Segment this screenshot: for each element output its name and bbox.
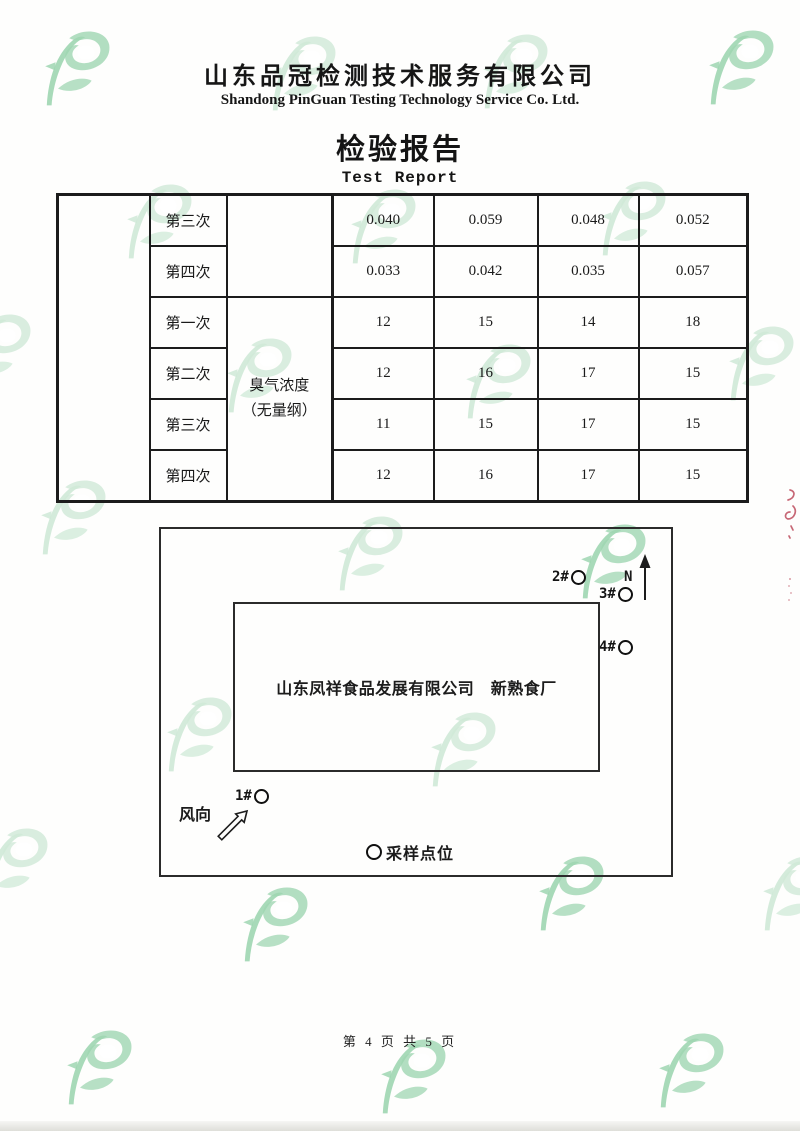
scan-bottom-edge	[0, 1121, 800, 1131]
legend: 采样点位	[366, 840, 454, 864]
parameter-line2: （无量纲）	[242, 403, 317, 419]
sampling-point-circle-icon	[254, 789, 269, 804]
site-map: 山东凤祥食品发展有限公司 新熟食厂 2# 3# 4# 1# N	[159, 527, 673, 877]
cell-value: 17	[538, 450, 639, 502]
sampling-point-circle-icon	[618, 640, 633, 655]
factory-building: 山东凤祥食品发展有限公司 新熟食厂	[233, 602, 600, 772]
cell-value: 0.048	[538, 195, 639, 247]
row-label: 第一次	[150, 297, 227, 348]
company-name: 山东品冠检测技术服务有限公司	[0, 56, 800, 91]
cell-value: 15	[639, 348, 748, 399]
table-row: 第一次 臭气浓度 （无量纲） 12 15 14 18	[58, 297, 748, 348]
cell-value: 0.059	[434, 195, 538, 247]
report-page: 山东品冠检测技术服务有限公司 Shandong PinGuan Testing …	[0, 0, 800, 1131]
row-label: 第三次	[150, 399, 227, 450]
cell-value: 16	[434, 348, 538, 399]
report-title: 检验报告	[0, 126, 800, 168]
cell-value: 12	[333, 450, 434, 502]
sampling-point-4: 4#	[599, 639, 633, 655]
parameter-line1: 臭气浓度	[249, 378, 309, 394]
red-edge-marks	[781, 486, 799, 548]
empty-parameter-cell	[227, 195, 333, 298]
empty-merged-cell	[58, 195, 150, 502]
cell-value: 12	[333, 348, 434, 399]
cell-value: 17	[538, 348, 639, 399]
wind-direction-label: 风向	[179, 801, 211, 825]
table-row: 第三次 11 15 17 15	[58, 399, 748, 450]
table-row: 第四次 12 16 17 15	[58, 450, 748, 502]
cell-value: 0.040	[333, 195, 434, 247]
cell-value: 16	[434, 450, 538, 502]
row-label: 第二次	[150, 348, 227, 399]
results-table: 第三次 0.040 0.059 0.048 0.052 第四次 0.033 0.…	[56, 193, 749, 503]
legend-label: 采样点位	[386, 840, 454, 864]
cell-value: 15	[639, 399, 748, 450]
table-row: 第二次 12 16 17 15	[58, 348, 748, 399]
sampling-point-2-label: 2#	[552, 569, 569, 585]
cell-value: 15	[434, 399, 538, 450]
legend-circle-icon	[366, 844, 382, 860]
cell-value: 0.033	[333, 246, 434, 297]
table-row: 第四次 0.033 0.042 0.035 0.057	[58, 246, 748, 297]
parameter-label: 臭气浓度 （无量纲）	[227, 297, 333, 502]
red-edge-dots	[784, 576, 796, 606]
cell-value: 0.035	[538, 246, 639, 297]
cell-value: 0.042	[434, 246, 538, 297]
sampling-point-1: 1#	[235, 788, 269, 804]
north-arrow-icon	[638, 554, 652, 602]
company-name-en: Shandong PinGuan Testing Technology Serv…	[0, 92, 800, 109]
cell-value: 18	[639, 297, 748, 348]
sampling-point-3-label: 3#	[599, 586, 616, 602]
cell-value: 14	[538, 297, 639, 348]
table-row: 第三次 0.040 0.059 0.048 0.052	[58, 195, 748, 247]
sampling-point-4-label: 4#	[599, 639, 616, 655]
cell-value: 15	[434, 297, 538, 348]
content-layer: 山东品冠检测技术服务有限公司 Shandong PinGuan Testing …	[0, 0, 800, 1131]
cell-value: 11	[333, 399, 434, 450]
cell-value: 12	[333, 297, 434, 348]
wind-arrow-icon	[213, 805, 251, 843]
row-label: 第三次	[150, 195, 227, 247]
cell-value: 15	[639, 450, 748, 502]
sampling-point-circle-icon	[571, 570, 586, 585]
sampling-point-2: 2#	[552, 569, 586, 585]
cell-value: 17	[538, 399, 639, 450]
sampling-point-1-label: 1#	[235, 788, 252, 804]
row-label: 第四次	[150, 246, 227, 297]
report-title-en: Test Report	[0, 169, 800, 187]
page-footer: 第 4 页 共 5 页	[0, 1031, 800, 1050]
north-label: N	[624, 569, 632, 585]
sampling-point-circle-icon	[618, 587, 633, 602]
cell-value: 0.052	[639, 195, 748, 247]
row-label: 第四次	[150, 450, 227, 502]
factory-label: 山东凤祥食品发展有限公司 新熟食厂	[276, 675, 557, 699]
sampling-point-3: 3#	[599, 586, 633, 602]
cell-value: 0.057	[639, 246, 748, 297]
